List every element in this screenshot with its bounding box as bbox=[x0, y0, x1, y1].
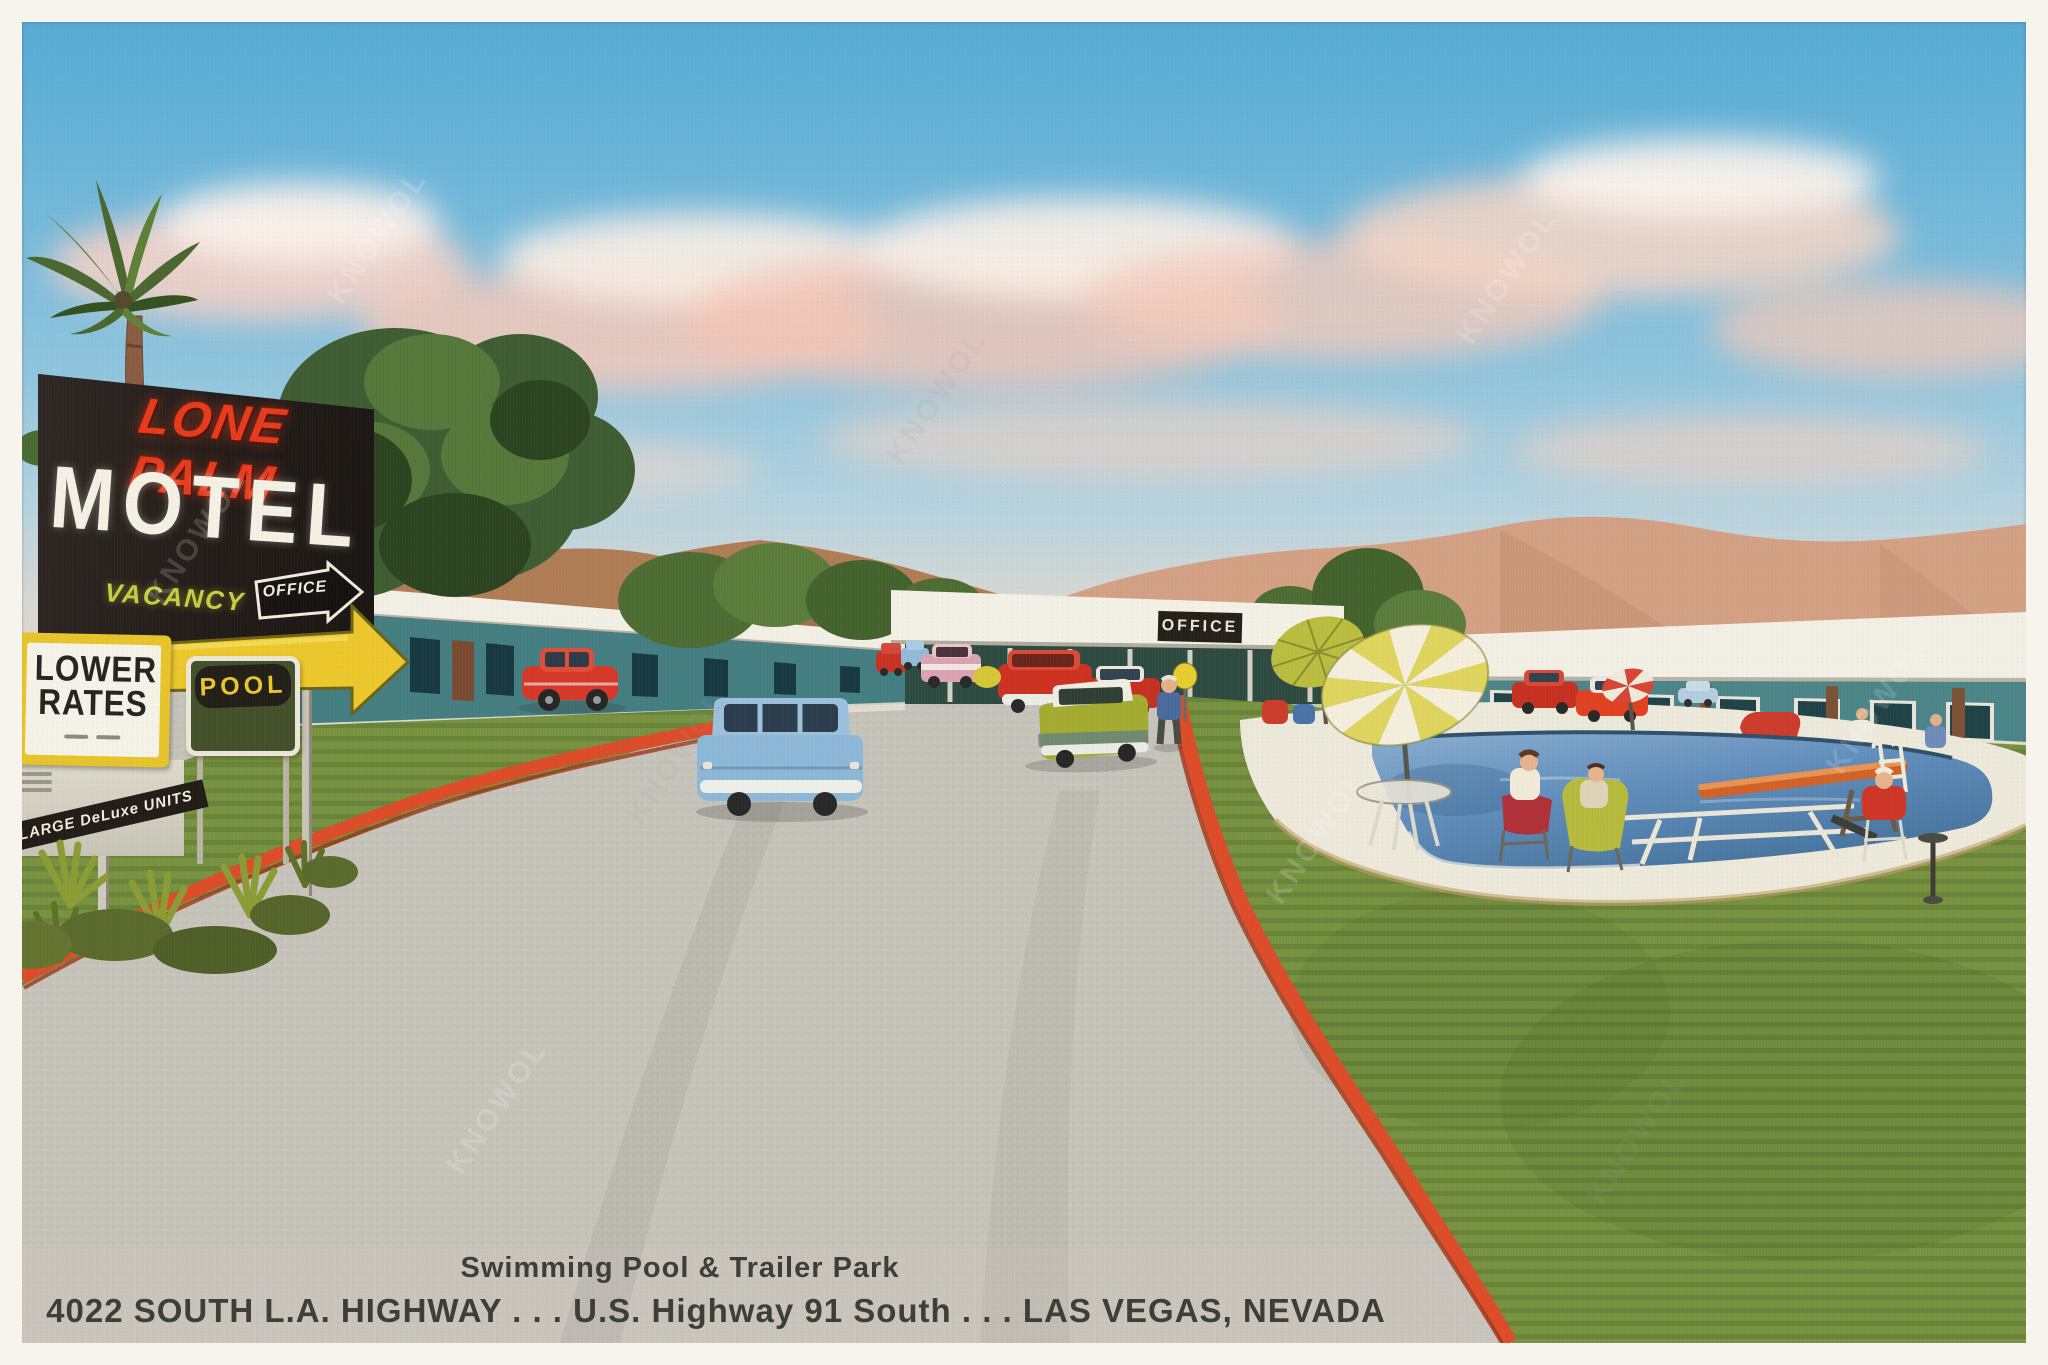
pool-sign: POOL bbox=[186, 656, 300, 756]
deluxe-units-panel: LARGE DeLuxe UNITS bbox=[22, 760, 184, 856]
postcard-illustration: LONE PALM MOTEL VACANCY OFFICE LOWER RAT… bbox=[22, 22, 2026, 1343]
office-roof-sign: OFFICE bbox=[1158, 611, 1243, 643]
illegible-small-print bbox=[22, 768, 52, 796]
caption-amenities: Swimming Pool & Trailer Park bbox=[430, 1252, 930, 1285]
caption-address: 4022 SOUTH L.A. HIGHWAY . . . U.S. Highw… bbox=[36, 1292, 1396, 1330]
illegible-small-print bbox=[25, 725, 159, 746]
pool-sign-text: POOL bbox=[194, 663, 291, 708]
motel-door bbox=[452, 640, 474, 701]
rates-line2: RATES bbox=[34, 685, 153, 722]
sign-motel-text: MOTEL bbox=[44, 447, 368, 569]
lower-rates-sign: LOWER RATES bbox=[22, 632, 171, 767]
postcard: LONE PALM MOTEL VACANCY OFFICE LOWER RAT… bbox=[0, 0, 2048, 1365]
